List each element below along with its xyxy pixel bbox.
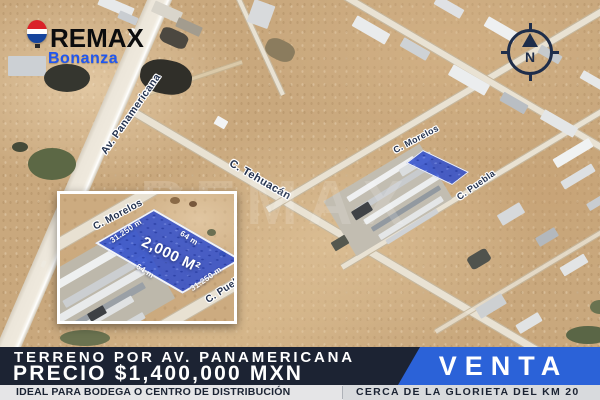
map-texture-shape: [12, 142, 28, 152]
parcel-zoom-inset: C. Morelos C. Puebla 31.250 m 64 m 64 m …: [57, 191, 237, 324]
inset-texture-shape: [170, 197, 180, 204]
banner-subtext-strip: IDEAL PARA BODEGA O CENTRO DE DISTRIBUCI…: [0, 385, 600, 400]
compass-tick-north: [529, 23, 532, 32]
venta-badge-label: VENTA: [407, 347, 600, 385]
map-texture-shape: [590, 300, 600, 314]
road-unnamed: [434, 224, 600, 335]
map-texture-shape: [8, 56, 46, 76]
listing-note-left: IDEAL PARA BODEGA O CENTRO DE DISTRIBUCI…: [16, 385, 290, 400]
inset-texture-shape: [189, 201, 197, 207]
map-texture-shape: [535, 227, 559, 247]
inset-texture-shape: [207, 229, 216, 236]
map-texture-shape: [515, 312, 542, 334]
north-compass-icon: N: [500, 22, 560, 82]
map-texture-shape: [497, 202, 525, 226]
map-texture-shape: [566, 326, 600, 344]
brand-office-name: Bonanza: [48, 50, 118, 68]
listing-note-right: CERCA DE LA GLORIETA DEL KM 20: [356, 385, 580, 400]
balloon-basket-icon: [35, 44, 40, 48]
flyer-canvas: Av. Panamericana C. Tehuacán C. Morelos …: [0, 0, 600, 400]
compass-tick-south: [529, 72, 532, 81]
map-texture-shape: [466, 247, 492, 270]
listing-price: PRECIO $1,400,000 MXN: [13, 362, 303, 386]
brand-name: REMAX: [50, 25, 144, 51]
map-texture-shape: [28, 148, 76, 180]
map-texture-shape: [434, 0, 465, 19]
map-texture-shape: [586, 189, 600, 211]
venta-badge: VENTA: [393, 347, 600, 385]
map-texture-shape: [552, 138, 593, 168]
map-texture-shape: [560, 163, 595, 189]
compass-north-letter: N: [500, 49, 560, 65]
map-texture-shape: [214, 116, 229, 130]
remax-balloon-icon: [27, 20, 47, 43]
banner-bar: TERRENO POR AV. PANAMERICANA PRECIO $1,4…: [0, 347, 600, 385]
map-texture-shape: [579, 70, 600, 91]
strip-divider: [342, 386, 343, 399]
map-texture-shape: [44, 64, 90, 92]
map-texture-shape: [60, 330, 110, 346]
north-arrow-icon: [522, 33, 538, 47]
